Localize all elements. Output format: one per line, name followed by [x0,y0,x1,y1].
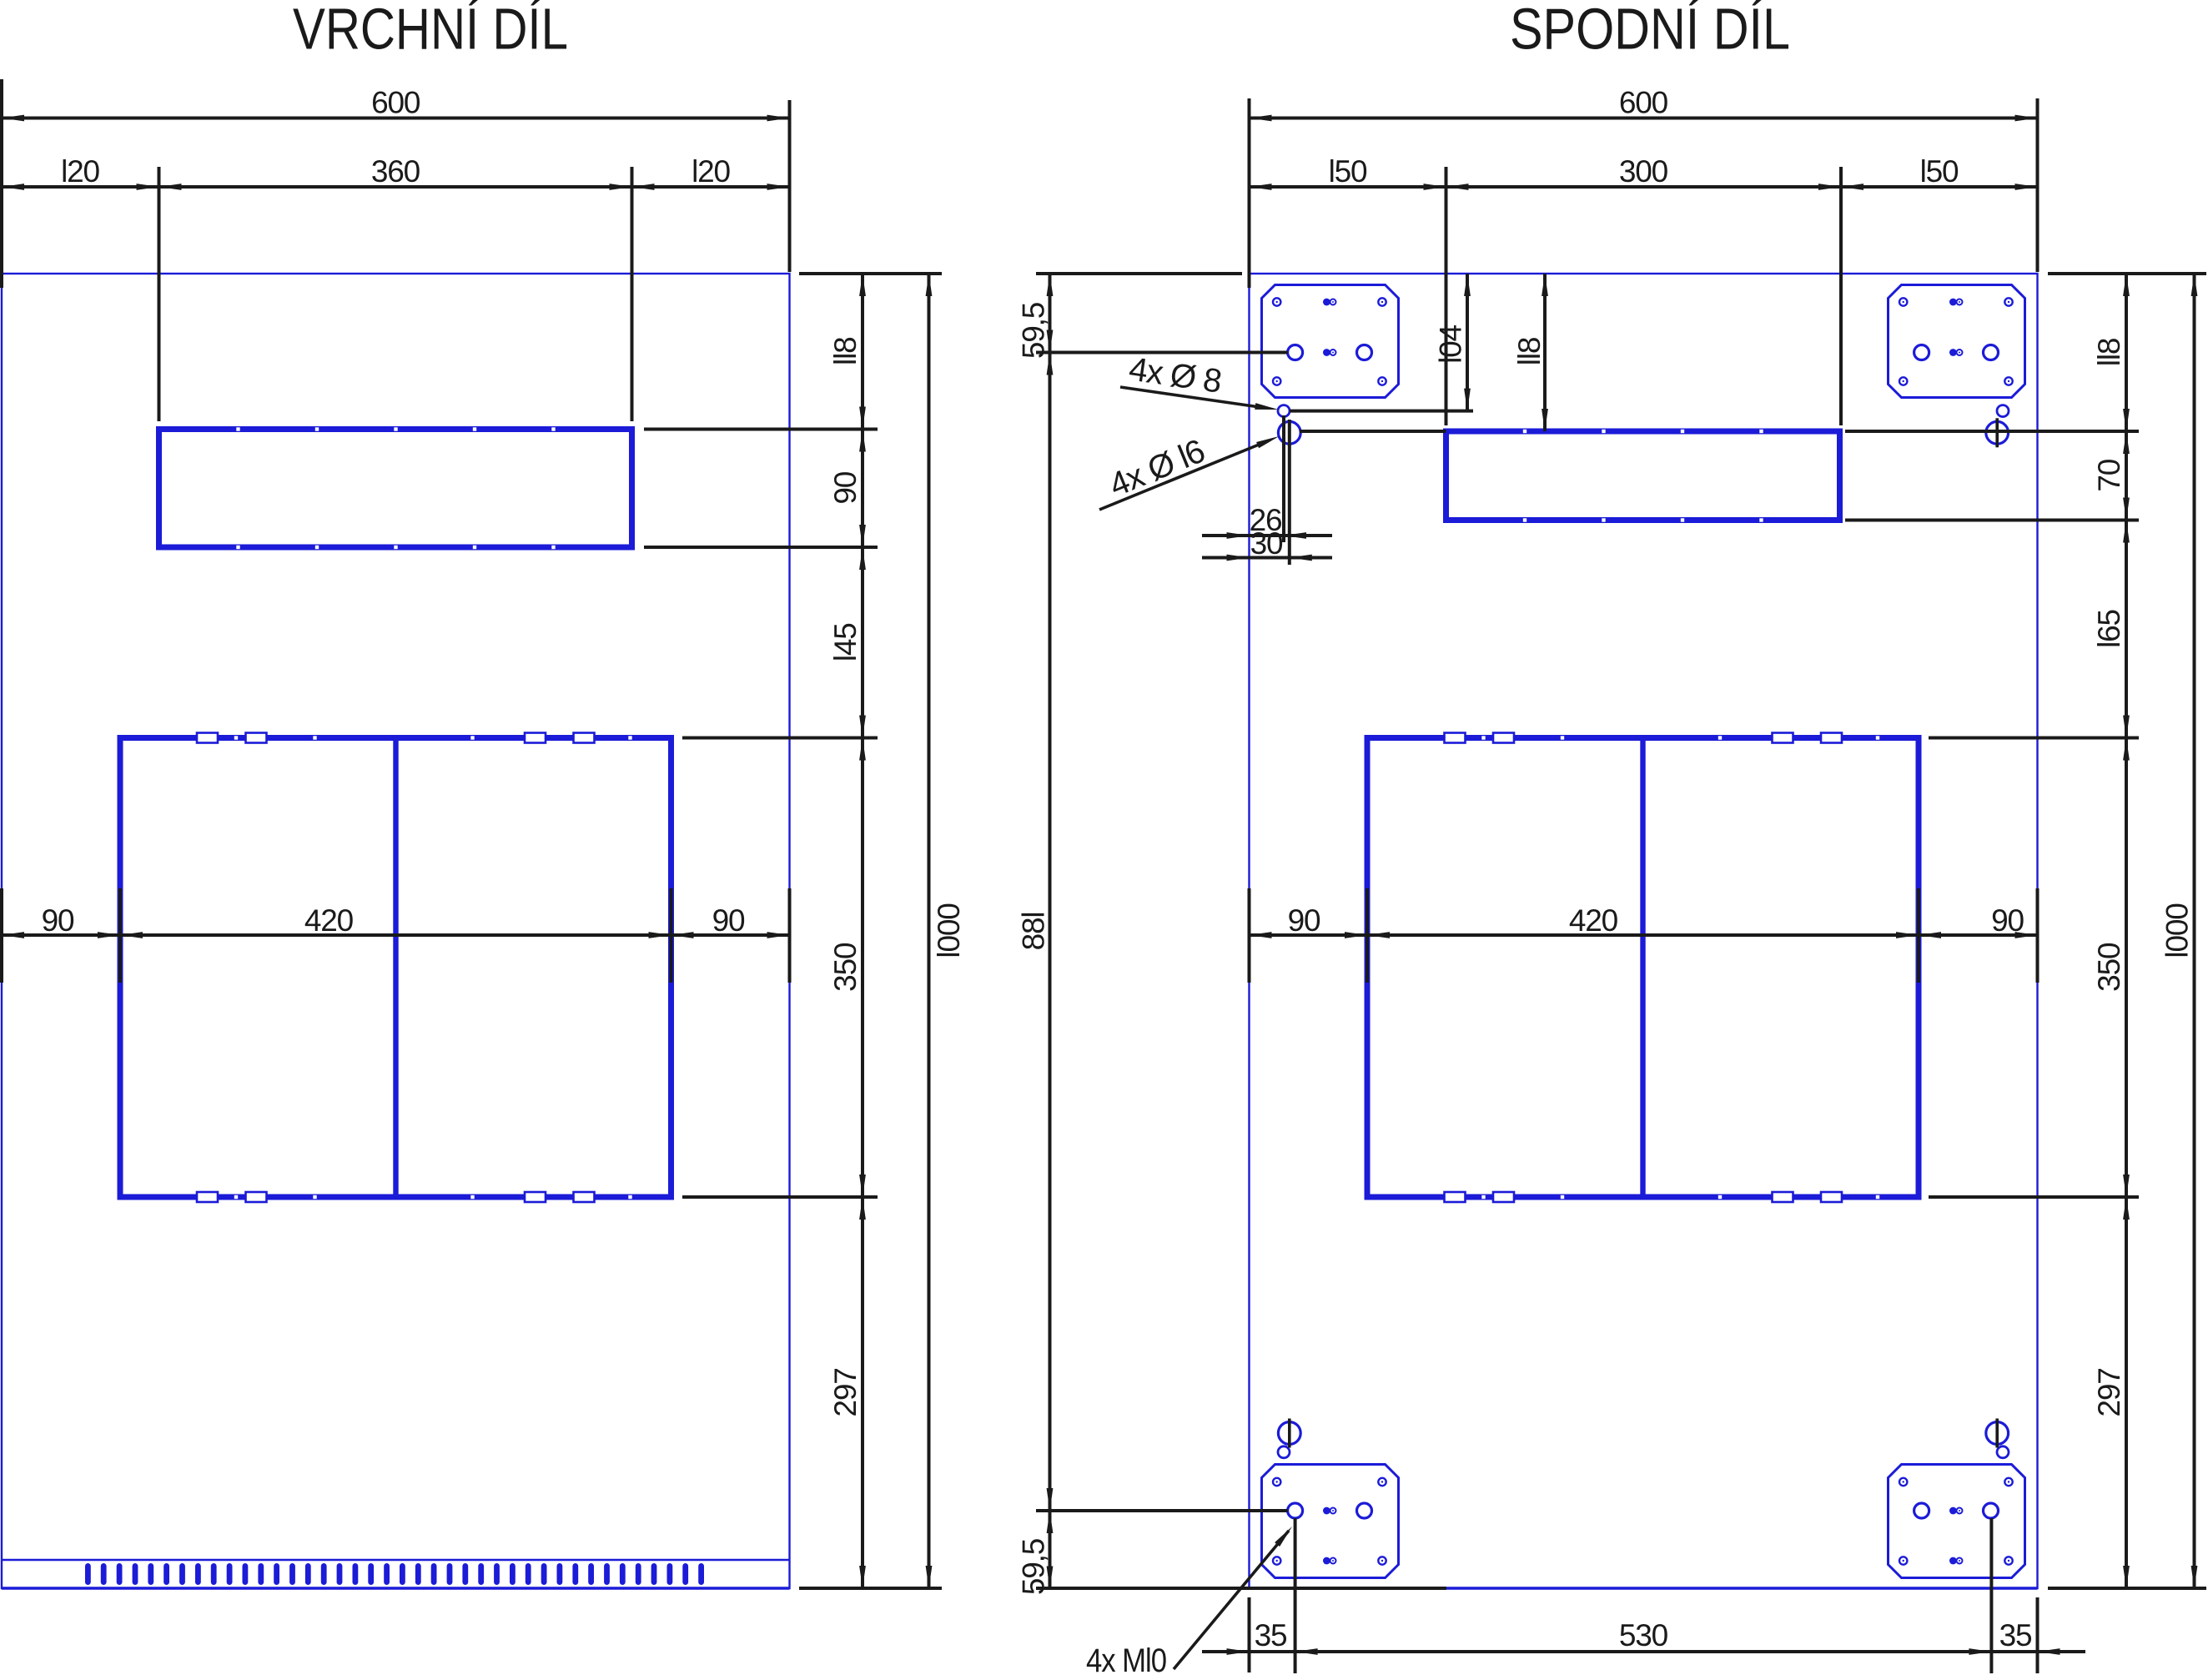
svg-text:ll8: ll8 [1512,338,1547,365]
svg-text:90: 90 [1991,903,2024,938]
svg-text:90: 90 [42,903,74,938]
svg-text:l20: l20 [61,154,99,189]
svg-text:59,5: 59,5 [1017,302,1051,359]
svg-text:VRCHNÍ DÍL: VRCHNÍ DÍL [293,0,568,62]
svg-text:420: 420 [304,903,354,938]
svg-text:l65: l65 [2092,609,2126,647]
svg-text:90: 90 [828,471,863,504]
svg-text:600: 600 [371,86,420,120]
svg-text:90: 90 [712,903,745,938]
svg-text:l50: l50 [1329,154,1367,189]
svg-text:l45: l45 [828,623,863,661]
svg-text:90: 90 [1288,903,1320,938]
svg-text:530: 530 [1619,1618,1668,1652]
svg-text:SPODNÍ DÍL: SPODNÍ DÍL [1510,0,1790,62]
svg-text:35: 35 [1999,1618,2032,1652]
svg-text:297: 297 [828,1368,863,1416]
svg-text:297: 297 [2092,1368,2126,1416]
svg-text:l50: l50 [1920,154,1959,189]
svg-text:600: 600 [1619,86,1668,120]
svg-text:35: 35 [1255,1618,1287,1652]
svg-text:300: 300 [1619,154,1668,189]
svg-text:l000: l000 [932,903,966,958]
svg-text:ll8: ll8 [828,338,863,365]
svg-text:88l: 88l [1017,913,1051,951]
svg-text:70: 70 [2092,459,2126,491]
svg-text:ll8: ll8 [2092,339,2126,366]
svg-text:360: 360 [371,154,420,189]
svg-text:l20: l20 [692,154,730,189]
svg-text:420: 420 [1569,903,1618,938]
svg-text:59,5: 59,5 [1017,1538,1051,1595]
svg-text:30: 30 [1250,526,1283,561]
svg-text:4x Ml0: 4x Ml0 [1086,1642,1166,1679]
svg-text:350: 350 [828,943,863,992]
svg-text:l04: l04 [1434,324,1468,363]
svg-text:l000: l000 [2160,903,2195,958]
svg-text:350: 350 [2092,943,2126,992]
